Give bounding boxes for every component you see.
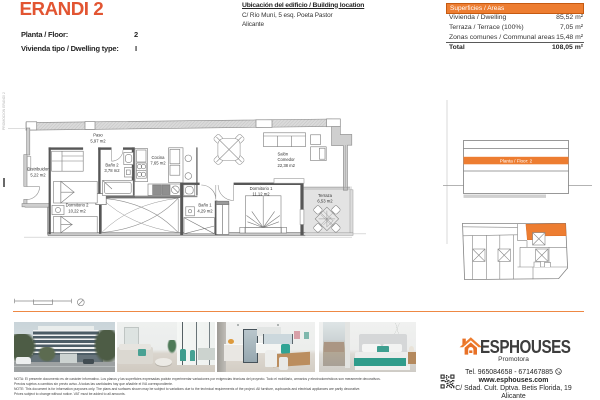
svg-text:4,29 m2: 4,29 m2 bbox=[197, 208, 213, 213]
svg-text:Comedor: Comedor bbox=[278, 157, 296, 162]
svg-text:5,22 m2: 5,22 m2 bbox=[30, 172, 46, 177]
svg-text:Dormitorio 1: Dormitorio 1 bbox=[250, 186, 273, 191]
svg-text:Paso: Paso bbox=[93, 133, 103, 138]
svg-text:10,22 m2: 10,22 m2 bbox=[68, 208, 86, 213]
svg-text:6,53 m2: 6,53 m2 bbox=[317, 199, 333, 204]
svg-text:7,65 m2: 7,65 m2 bbox=[150, 161, 166, 166]
svg-text:5,97 m2: 5,97 m2 bbox=[90, 138, 106, 143]
svg-text:11,12 m2: 11,12 m2 bbox=[252, 191, 270, 196]
svg-text:Planta / Floor: 2: Planta / Floor: 2 bbox=[500, 158, 533, 163]
svg-text:Terraza: Terraza bbox=[318, 193, 333, 198]
svg-text:PROMOCION ERANDI 2: PROMOCION ERANDI 2 bbox=[2, 92, 6, 130]
svg-text:Baño 1: Baño 1 bbox=[198, 203, 212, 208]
svg-text:Baño 2: Baño 2 bbox=[105, 162, 119, 167]
svg-text:Dormitorio 2: Dormitorio 2 bbox=[66, 203, 89, 208]
svg-text:22,38 m2: 22,38 m2 bbox=[278, 163, 296, 168]
svg-text:3,78 m2: 3,78 m2 bbox=[104, 168, 120, 173]
svg-text:Distribuidor: Distribuidor bbox=[27, 167, 49, 172]
svg-text:Cocina: Cocina bbox=[151, 155, 165, 160]
svg-text:Salón: Salón bbox=[278, 151, 289, 156]
